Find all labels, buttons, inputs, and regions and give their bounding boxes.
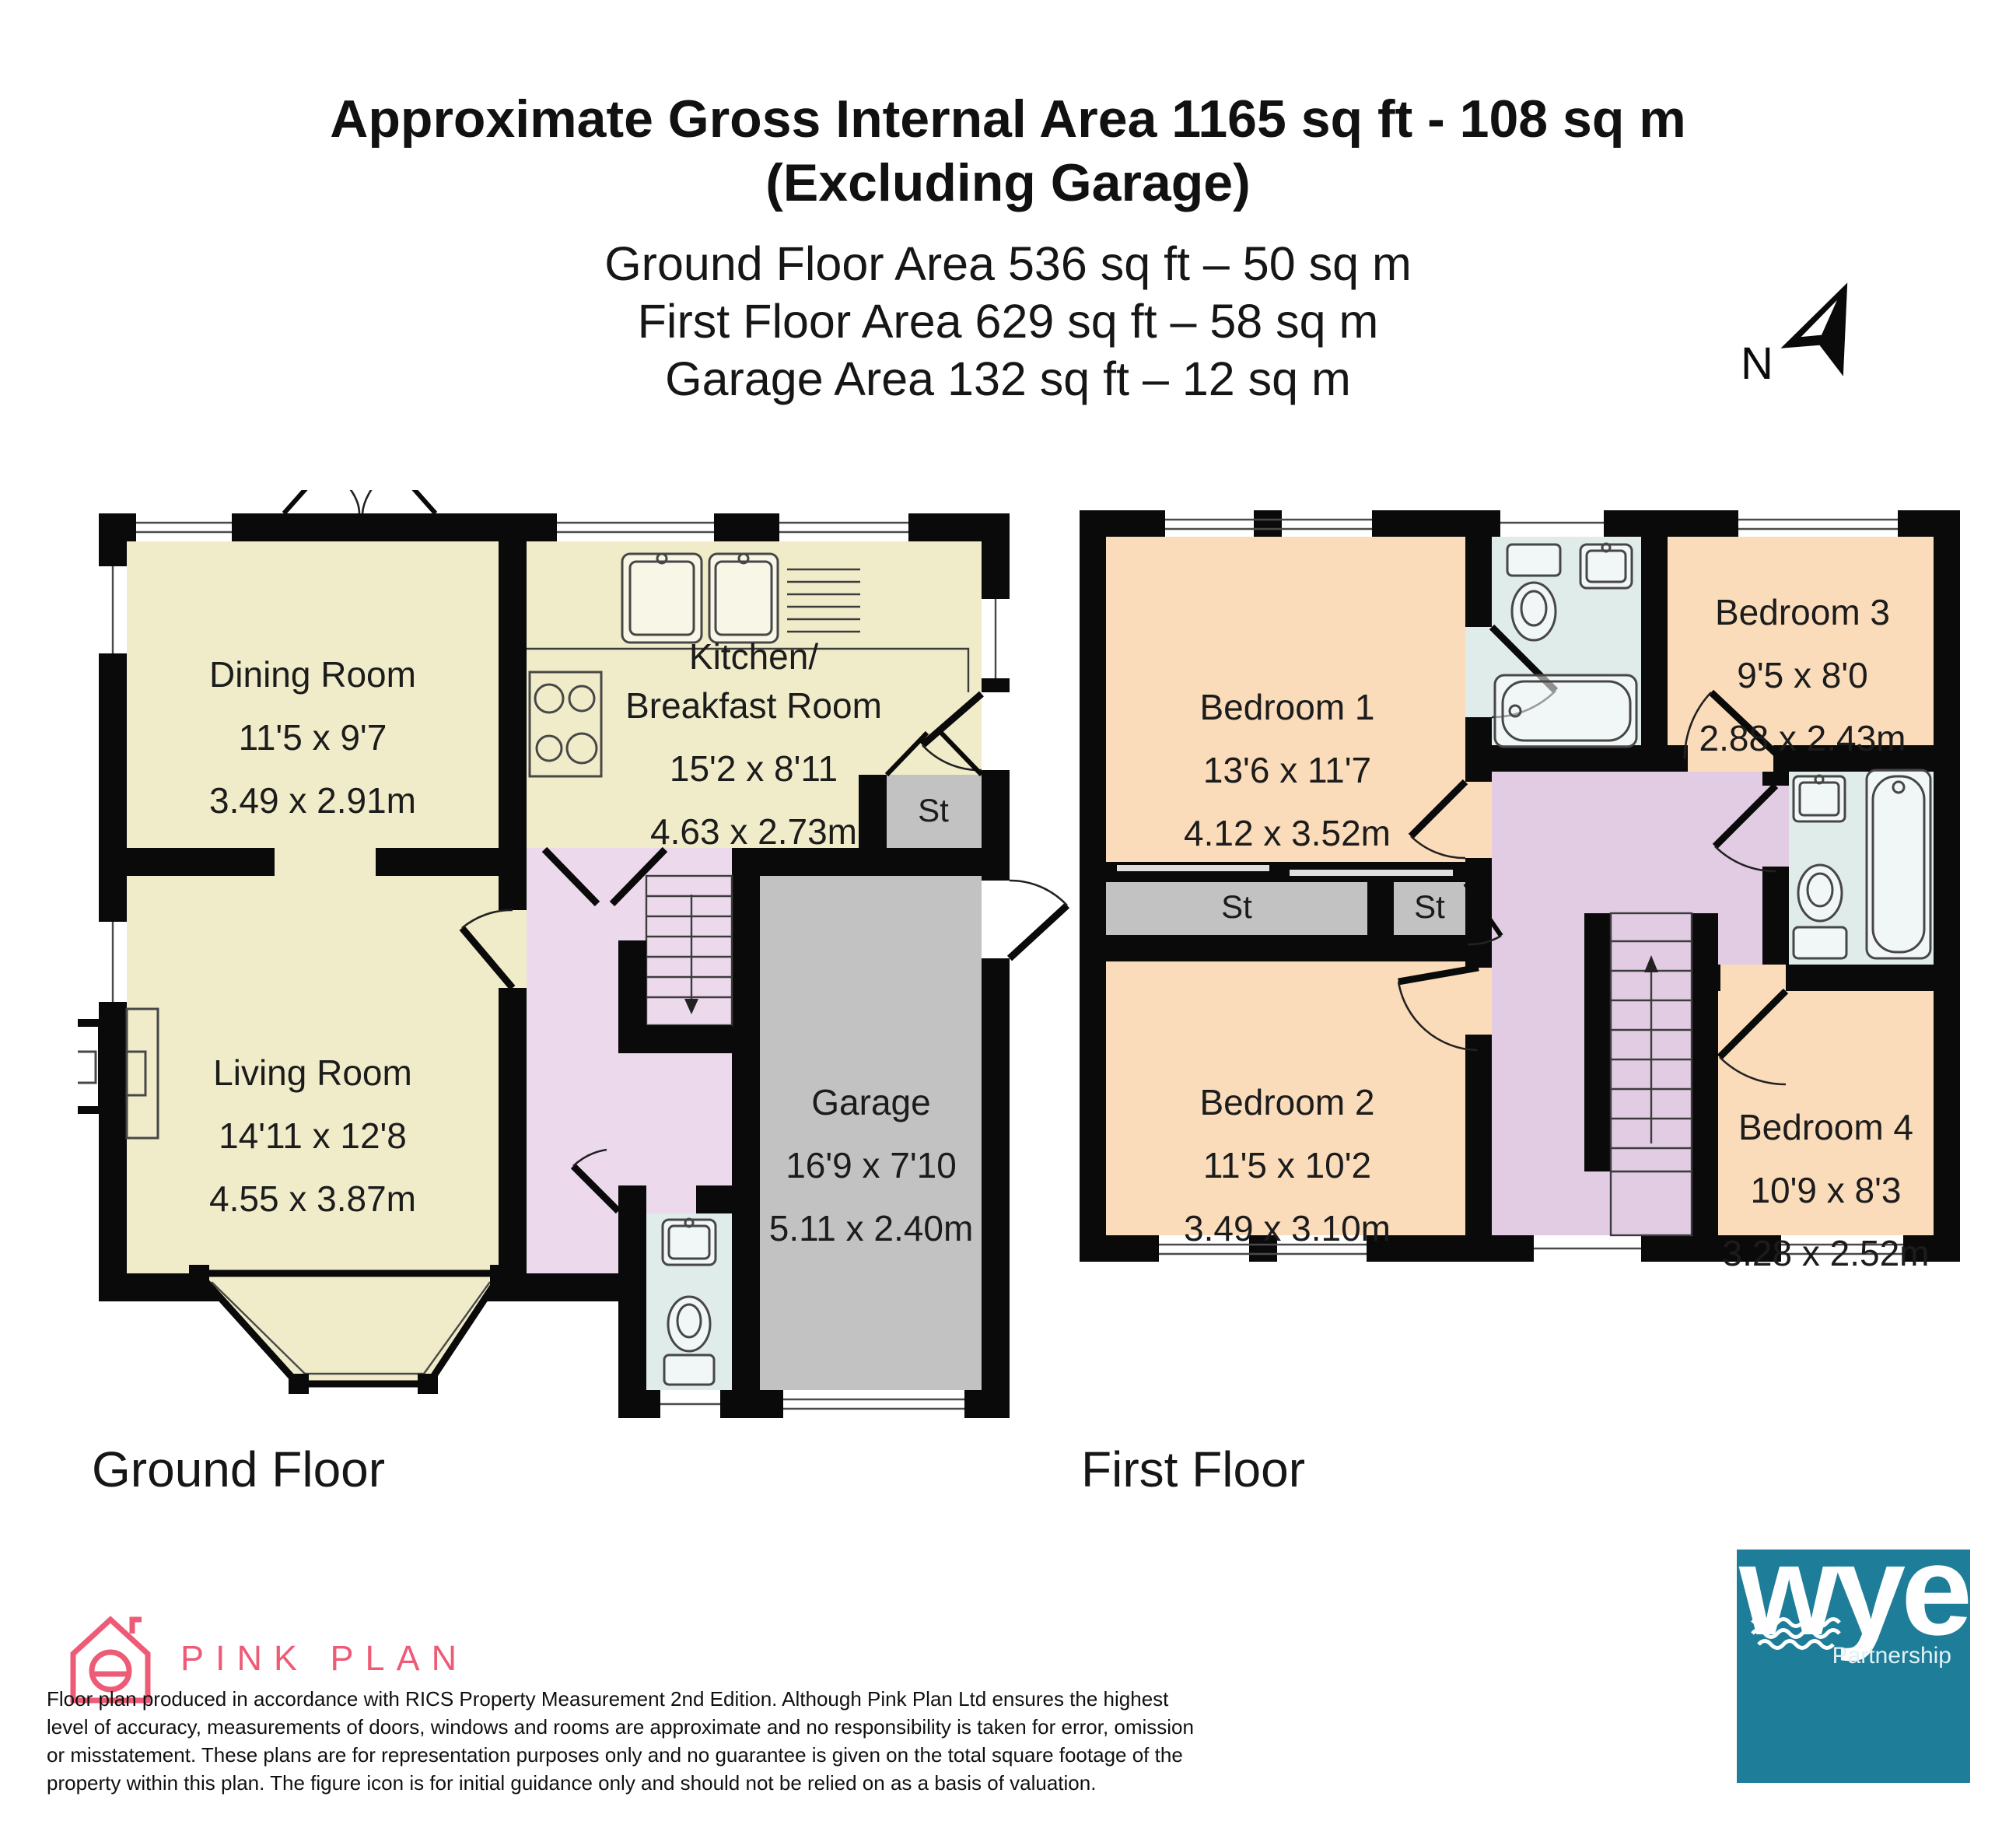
- bedroom4-label: Bedroom 4 10'9 x 8'3 3.28 x 2.52m: [1692, 1089, 1960, 1292]
- bathroom-bath-icon: [1495, 675, 1636, 747]
- room-name: Bedroom 3: [1668, 588, 1937, 637]
- room-name: Garage: [758, 1078, 984, 1127]
- first-floor-area-line: First Floor Area 629 sq ft – 58 sq m: [0, 292, 2016, 350]
- wye-partnership-sub: Partnership: [1832, 1643, 1951, 1669]
- dining-room-label: Dining Room 11'5 x 9'7 3.49 x 2.91m: [138, 636, 488, 839]
- room-dims-imperial: 16'9 x 7'10: [758, 1141, 984, 1190]
- title-line-2: (Excluding Garage): [0, 151, 2016, 215]
- first-floor-title: First Floor: [1081, 1441, 1305, 1498]
- room-name: Bedroom 2: [1108, 1078, 1466, 1127]
- room-dims-metric: 4.55 x 3.87m: [138, 1175, 488, 1224]
- bedroom2-label: Bedroom 2 11'5 x 10'2 3.49 x 3.10m: [1108, 1064, 1466, 1267]
- room-dims-metric: 3.49 x 3.10m: [1108, 1204, 1466, 1253]
- disclaimer-text: Floor plan produced in accordance with R…: [47, 1685, 1229, 1797]
- room-name: Kitchen/ Breakfast Room: [579, 632, 929, 730]
- room-dims-metric: 5.11 x 2.40m: [758, 1204, 984, 1253]
- room-dims-imperial: 11'5 x 9'7: [138, 713, 488, 762]
- room-dims-metric: 3.28 x 2.52m: [1692, 1229, 1960, 1278]
- header-block: Approximate Gross Internal Area 1165 sq …: [0, 87, 2016, 408]
- room-dims-imperial: 14'11 x 12'8: [138, 1112, 488, 1161]
- wye-partnership-logo: wye Partnership: [1737, 1550, 1970, 1783]
- room-dims-metric: 4.12 x 3.52m: [1108, 809, 1466, 858]
- room-dims-metric: 3.49 x 2.91m: [138, 776, 488, 825]
- ground-floor-title: Ground Floor: [92, 1441, 385, 1498]
- ground-store-label: St: [894, 792, 972, 829]
- bathroom-toilet-icon: [1507, 545, 1560, 576]
- room-dims-imperial: 15'2 x 8'11: [579, 744, 929, 793]
- garage-area-line: Garage Area 132 sq ft – 12 sq m: [0, 350, 2016, 408]
- room-dims-metric: 2.88 x 2.43m: [1668, 714, 1937, 763]
- room-dims-imperial: 13'6 x 11'7: [1108, 746, 1466, 795]
- bedroom3-label: Bedroom 3 9'5 x 8'0 2.88 x 2.43m: [1668, 574, 1937, 777]
- kitchen-label: Kitchen/ Breakfast Room 15'2 x 8'11 4.63…: [579, 618, 929, 870]
- north-arrow-icon: [1734, 272, 1921, 404]
- living-room-label: Living Room 14'11 x 12'8 4.55 x 3.87m: [138, 1035, 488, 1238]
- room-dims-metric: 4.63 x 2.73m: [579, 807, 929, 856]
- garage-label: Garage 16'9 x 7'10 5.11 x 2.40m: [758, 1064, 984, 1267]
- room-dims-imperial: 10'9 x 8'3: [1692, 1166, 1960, 1215]
- bedroom1-label: Bedroom 1 13'6 x 11'7 4.12 x 3.52m: [1108, 669, 1466, 872]
- room-dims-imperial: 9'5 x 8'0: [1668, 651, 1937, 700]
- room-name: Bedroom 1: [1108, 683, 1466, 732]
- room-name: Dining Room: [138, 650, 488, 699]
- ground-floor-area-line: Ground Floor Area 536 sq ft – 50 sq m: [0, 235, 2016, 292]
- first-store-small-label: St: [1391, 888, 1468, 926]
- title-line-1: Approximate Gross Internal Area 1165 sq …: [0, 87, 2016, 151]
- room-name: Living Room: [138, 1049, 488, 1098]
- room-name: Bedroom 4: [1692, 1103, 1960, 1152]
- room-dims-imperial: 11'5 x 10'2: [1108, 1141, 1466, 1190]
- pink-plan-brand: PINK PLAN: [180, 1638, 468, 1679]
- ensuite-bath-icon: [1867, 770, 1930, 958]
- first-store-long-label: St: [1198, 888, 1276, 926]
- landing-floor: [1492, 772, 1762, 965]
